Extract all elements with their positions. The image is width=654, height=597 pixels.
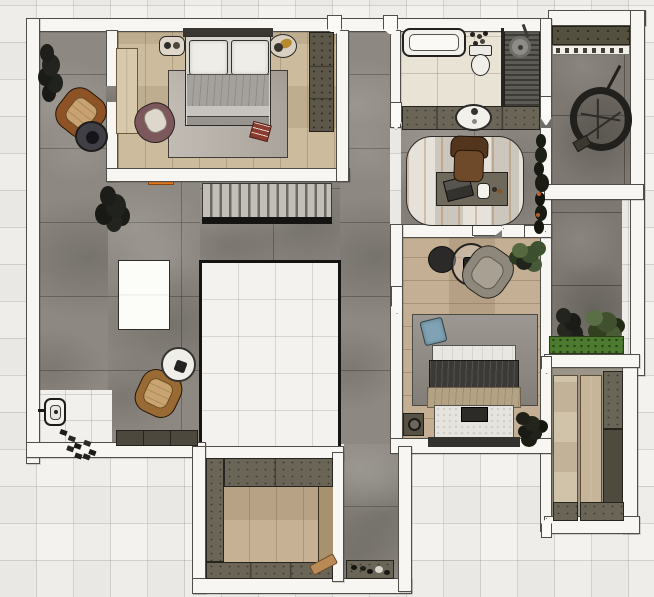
kitchen-floor [222,486,333,562]
nightstand-lamp [408,418,421,431]
closet-low-cabinet-right [580,502,624,521]
hanging-chair-web-3 [597,99,599,139]
bedroom2-nightstand-left [403,413,424,436]
toilet-bowl [471,54,490,76]
shower-head [509,36,531,58]
decor2-dark [274,43,283,52]
living-coffee-table [75,121,108,152]
study-desk-item [492,187,497,192]
sink-drain [472,119,477,124]
study-wall-plant-orange-2 [536,213,540,217]
bedroom1-duvet [187,74,269,108]
bedroom1-pillow-right [231,40,269,75]
wall-bedroom1-bottom [106,168,350,182]
entry-intercom-stem [38,409,45,412]
bedroom1-wall-decor-1 [159,36,185,56]
kitchen-counter-right-strip [318,487,333,562]
closet-cabinet-top [603,371,623,429]
study-wall-plant-orange-1 [537,192,541,196]
intercom-button [54,410,58,414]
balcony-planter-box [549,336,624,354]
bedroom1-wardrobe-cabinet [309,32,334,132]
study-wall-plants [536,134,546,148]
decor1-detail [164,42,171,49]
vanity-sink [455,104,492,131]
wall-top-main [26,18,552,32]
shower-head-center [518,45,523,50]
bathtub-basin [409,34,459,51]
wall-kitchen-left [192,446,206,594]
stairwell-void-opening [199,260,341,450]
armchair-plum-cushion [141,105,170,136]
balcony-plant-leafy [586,310,603,326]
office-chair-seat [453,149,484,182]
bedroom1-wall-decor-2 [269,34,297,58]
bathroom-toiletries [470,32,475,37]
entry-intercom [44,398,66,426]
bedroom2-duvet-dark [429,360,519,390]
decor1-detail2 [173,42,180,49]
living-plant-1 [40,44,54,62]
staircase [202,183,332,219]
balcony-shelf-white [552,45,630,55]
closet-cabinet-bottom [603,429,623,503]
closet-wood-panel-1 [553,375,578,503]
wall-balcony-sill [544,184,644,200]
wall-left-outer [26,18,40,464]
living-side-table [161,347,196,382]
kitchen-counter-top [224,458,333,487]
armchair-gray-cushion [467,253,507,294]
armchair2-cushion [141,376,176,411]
coffee-table-plant [86,131,99,144]
wall-closet-right [622,356,638,534]
bedroom2-plant [512,243,528,258]
sink-faucet [471,108,478,115]
wall-closet-top [544,354,640,368]
wall-corridor-right [398,446,412,592]
wall-bedroom1-right [336,30,349,182]
study-mug [477,183,490,199]
balcony-right-floor [552,200,622,358]
corridor-shoes [351,565,357,570]
living-tv-cabinet [116,430,198,446]
closet-wood-panel-2 [580,375,602,503]
wall-right-long [540,18,552,532]
living-plant-2 [100,186,116,206]
side-table-item [173,359,187,373]
balcony-plant-dark [556,308,571,324]
staircase-edge [202,217,332,224]
kitchen-counter-left [206,458,224,562]
bedroom2-headboard [428,437,520,447]
balcony-shelf-dark [552,26,630,45]
shelf-accessories [556,48,626,53]
closet-low-cabinet-left [553,502,578,521]
bedroom2-nightstand-plant [516,412,530,425]
wall-bedroom2-left [390,224,403,450]
bedroom1-pillow-left [189,40,228,75]
bedroom2-bed-tray [461,407,488,422]
living-island-table [118,260,170,330]
wall-kitchen-bottom [192,578,412,594]
floorplan-canvas: { "scene": { "description": "Top-down 3D… [0,0,654,597]
study-office-chair [449,135,489,184]
bathtub [402,28,466,57]
shower-glass-panel [501,28,504,110]
